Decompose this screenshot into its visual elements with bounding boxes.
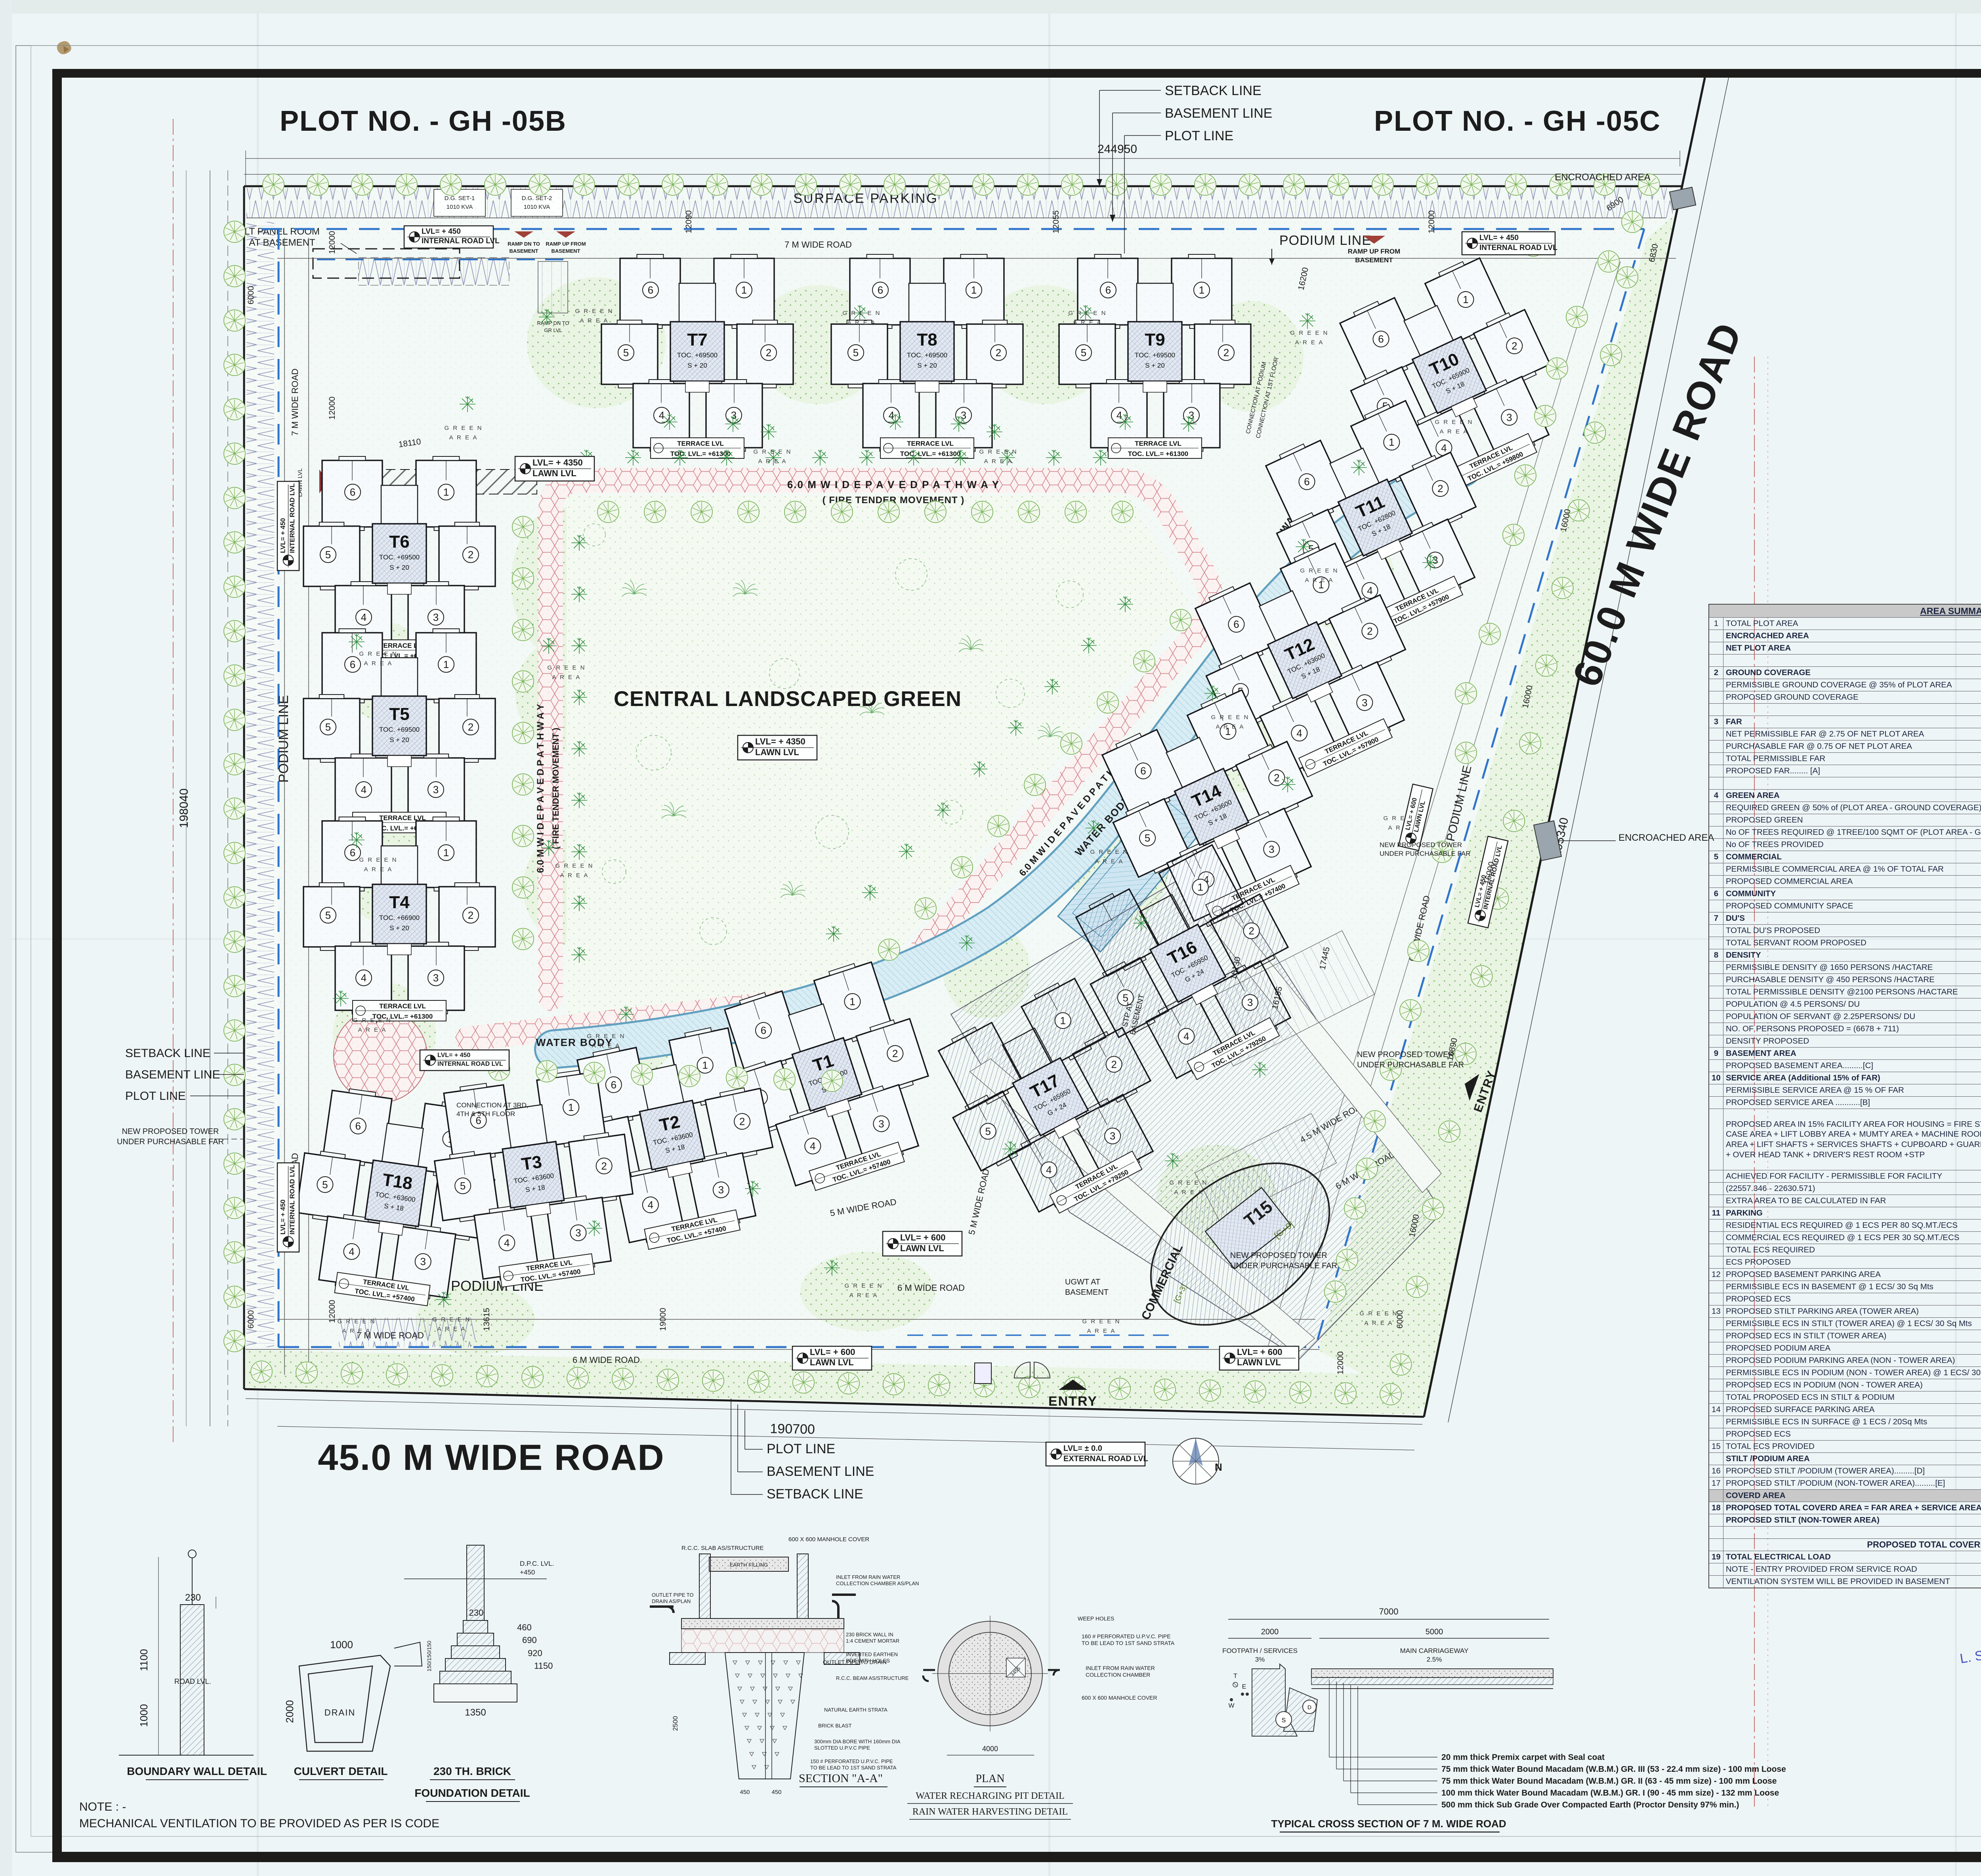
svg-text:LAWN LVL: LAWN LVL xyxy=(755,747,799,757)
svg-text:230 TH. BRICK: 230 TH. BRICK xyxy=(433,1765,511,1777)
svg-text:A R E A: A R E A xyxy=(580,317,609,324)
svg-text:150 # PERFORATED U.P.V.C. PIPE: 150 # PERFORATED U.P.V.C. PIPE xyxy=(810,1758,893,1764)
svg-text:EXTERNAL ROAD LVL: EXTERNAL ROAD LVL xyxy=(1063,1454,1148,1463)
svg-text:LVL= + 450: LVL= + 450 xyxy=(279,1199,287,1235)
svg-text:160 # PERFORATED U.P.V.C. PIPE: 160 # PERFORATED U.P.V.C. PIPE xyxy=(1082,1633,1171,1639)
svg-text:A R E A: A R E A xyxy=(984,458,1013,465)
svg-text:230: 230 xyxy=(185,1592,201,1603)
svg-text:NATURAL EARTH STRATA: NATURAL EARTH STRATA xyxy=(824,1707,887,1713)
svg-text:G R E E N: G R E E N xyxy=(1082,1318,1120,1325)
svg-text:TO BE LEAD TO 1ST SAND STRATA: TO BE LEAD TO 1ST SAND STRATA xyxy=(810,1765,897,1771)
svg-text:FOOTPATH / SERVICES: FOOTPATH / SERVICES xyxy=(1222,1647,1298,1655)
svg-text:UNDER PURCHASABLE FAR: UNDER PURCHASABLE FAR xyxy=(1380,850,1471,857)
svg-text:A R E A: A R E A xyxy=(364,866,393,873)
svg-text:600 X 600 MANHOLE COVER: 600 X 600 MANHOLE COVER xyxy=(1082,1695,1157,1701)
svg-text:190700: 190700 xyxy=(770,1421,815,1437)
svg-text:A R E A: A R E A xyxy=(758,458,787,465)
svg-text:LVL= ± 0.0: LVL= ± 0.0 xyxy=(1063,1444,1102,1453)
svg-text:4000: 4000 xyxy=(982,1745,998,1753)
svg-text:1:4 CEMENT MORTAR: 1:4 CEMENT MORTAR xyxy=(846,1638,899,1644)
svg-text:COLLECTION CHAMBER AS/PLAN: COLLECTION CHAMBER AS/PLAN xyxy=(836,1580,919,1586)
svg-text:BASEMENT: BASEMENT xyxy=(1065,1288,1109,1297)
svg-text:G R E E N: G R E E N xyxy=(1169,1179,1208,1186)
svg-text:S: S xyxy=(1282,1717,1286,1724)
svg-text:LAWN LVL: LAWN LVL xyxy=(900,1243,944,1253)
svg-text:INTERNAL ROAD LVL: INTERNAL ROAD LVL xyxy=(437,1061,503,1067)
svg-text:450: 450 xyxy=(771,1789,781,1796)
svg-text:12000: 12000 xyxy=(1427,210,1436,233)
svg-text:G R E E N: G R E E N xyxy=(1090,849,1128,855)
svg-text:12000: 12000 xyxy=(328,1300,337,1323)
svg-text:G R E E N: G R E E N xyxy=(444,425,483,431)
svg-text:PLOT NO. - GH -05C: PLOT NO. - GH -05C xyxy=(1374,105,1661,137)
svg-text:G R E E N: G R E E N xyxy=(753,448,792,455)
svg-text:WATER RECHARGING PIT DETAIL: WATER RECHARGING PIT DETAIL xyxy=(916,1791,1065,1801)
svg-text:G R E E N: G R E E N xyxy=(1359,1310,1398,1317)
svg-text:6000: 6000 xyxy=(246,1310,256,1329)
svg-text:A R E A: A R E A xyxy=(1216,723,1245,730)
svg-text:UNDER PURCHASABLE FAR: UNDER PURCHASABLE FAR xyxy=(1357,1061,1464,1069)
svg-text:A R E A: A R E A xyxy=(552,674,581,681)
svg-text:SETBACK LINE: SETBACK LINE xyxy=(125,1047,210,1060)
svg-text:CONNECTION AT 3RD,: CONNECTION AT 3RD, xyxy=(456,1101,529,1109)
svg-text:LVL= + 450: LVL= + 450 xyxy=(422,227,461,236)
svg-text:NEW PROPOSED TOWER: NEW PROPOSED TOWER xyxy=(122,1127,219,1136)
svg-text:LVL= + 450: LVL= + 450 xyxy=(1479,234,1519,242)
svg-text:G R E E N: G R E E N xyxy=(555,863,594,869)
svg-text:3%: 3% xyxy=(1255,1656,1265,1663)
svg-text:LVL= + 600: LVL= + 600 xyxy=(810,1347,855,1357)
svg-text:LVL= + 4350: LVL= + 4350 xyxy=(532,458,583,468)
svg-text:MECHANICAL VENTILATION TO BE P: MECHANICAL VENTILATION TO BE PROVIDED AS… xyxy=(79,1817,439,1830)
svg-text:A R E A: A R E A xyxy=(849,1292,878,1299)
svg-text:LAWN LVL: LAWN LVL xyxy=(810,1357,854,1367)
svg-text:WEEP HOLES: WEEP HOLES xyxy=(1078,1615,1114,1622)
svg-text:INLET FROM RAIN WATER: INLET FROM RAIN WATER xyxy=(836,1574,900,1580)
svg-text:G R E E N: G R E E N xyxy=(359,651,397,657)
svg-text:SECTION "A-A": SECTION "A-A" xyxy=(799,1772,883,1785)
svg-text:A R E A: A R E A xyxy=(1305,577,1334,584)
svg-text:DRAIN AS/PLAN: DRAIN AS/PLAN xyxy=(652,1598,691,1604)
svg-text:LVL= + 450: LVL= + 450 xyxy=(279,518,287,553)
svg-text:G R E E N: G R E E N xyxy=(979,448,1017,455)
svg-text:2000: 2000 xyxy=(1261,1628,1279,1636)
svg-text:13615: 13615 xyxy=(482,1308,491,1331)
svg-text:G R E E N: G R E E N xyxy=(1435,419,1473,426)
svg-text:LAWN LVL: LAWN LVL xyxy=(1237,1357,1281,1367)
svg-text:75 mm thick Water Bound Macada: 75 mm thick Water Bound Macadam (W.B.M.)… xyxy=(1441,1777,1777,1786)
svg-text:920: 920 xyxy=(528,1648,542,1658)
svg-text:BASEMENT LINE: BASEMENT LINE xyxy=(767,1464,874,1479)
svg-text:A R E A: A R E A xyxy=(342,1328,371,1334)
svg-text:7000: 7000 xyxy=(1379,1607,1399,1616)
svg-text:DRAIN: DRAIN xyxy=(324,1708,355,1718)
svg-text:LVL= + 450: LVL= + 450 xyxy=(437,1052,470,1059)
svg-text:LVL= + 4350: LVL= + 4350 xyxy=(755,737,805,746)
svg-text:A R E A: A R E A xyxy=(1073,319,1102,326)
svg-text:12090: 12090 xyxy=(684,210,693,233)
svg-text:19000: 19000 xyxy=(658,1308,668,1331)
svg-text:A R E A: A R E A xyxy=(358,1027,387,1033)
svg-text:UGWT AT: UGWT AT xyxy=(1065,1278,1100,1286)
svg-text:230: 230 xyxy=(469,1608,484,1618)
svg-text:T: T xyxy=(1233,1673,1237,1679)
svg-text:NEW PROPOSED TOWER: NEW PROPOSED TOWER xyxy=(1357,1050,1454,1059)
svg-text:+450: +450 xyxy=(520,1569,535,1576)
svg-text:1000: 1000 xyxy=(330,1639,353,1651)
svg-text:A R E A: A R E A xyxy=(560,872,589,879)
svg-text:D: D xyxy=(1307,1704,1311,1710)
svg-text:A R E A: A R E A xyxy=(592,1042,621,1049)
svg-text:BOUNDARY WALL DETAIL: BOUNDARY WALL DETAIL xyxy=(127,1765,267,1777)
svg-text:OUTLET PIPE TO DRAIN: OUTLET PIPE TO DRAIN xyxy=(823,1659,887,1665)
svg-text:A R E A: A R E A xyxy=(1440,428,1469,435)
svg-text:RAIN WATER HARVESTING DETAI: RAIN WATER HARVESTING DETAIL xyxy=(912,1807,1068,1817)
svg-text:PLAN: PLAN xyxy=(975,1773,1004,1785)
svg-text:ENTRY: ENTRY xyxy=(1048,1394,1097,1409)
svg-text:UNDER PURCHASABLE FAR: UNDER PURCHASABLE FAR xyxy=(1230,1261,1337,1270)
svg-text:D.P.C. LVL.: D.P.C. LVL. xyxy=(520,1560,554,1567)
svg-text:1000: 1000 xyxy=(138,1704,150,1727)
svg-text:A R E A: A R E A xyxy=(847,319,876,326)
svg-text:G R E E N: G R E E N xyxy=(547,664,586,671)
svg-text:INTERNAL ROAD LVL: INTERNAL ROAD LVL xyxy=(422,237,500,245)
svg-text:SLOTTED U.P.V.C PIPE: SLOTTED U.P.V.C PIPE xyxy=(814,1745,870,1751)
svg-text:G R E E N: G R E E N xyxy=(337,1318,376,1325)
svg-text:75 mm thick Water Bound Macada: 75 mm thick Water Bound Macadam (W.B.M.)… xyxy=(1441,1765,1786,1774)
svg-text:FOUNDATION DETAIL: FOUNDATION DETAIL xyxy=(414,1787,530,1799)
svg-text:A R E A: A R E A xyxy=(1095,858,1124,865)
svg-text:A R E A: A R E A xyxy=(449,434,478,441)
svg-text:NEW PROPOSED TOWER: NEW PROPOSED TOWER xyxy=(1230,1251,1327,1260)
svg-text:1350: 1350 xyxy=(465,1707,486,1718)
svg-text:R.C.C. SLAB AS/STRUCTURE: R.C.C. SLAB AS/STRUCTURE xyxy=(681,1545,764,1552)
svg-text:TO BE LEAD TO 1ST SAND STRATA: TO BE LEAD TO 1ST SAND STRATA xyxy=(1082,1640,1175,1646)
svg-text:12055: 12055 xyxy=(1052,210,1061,233)
svg-text:PLOT LINE: PLOT LINE xyxy=(1165,128,1233,143)
svg-text:600 X 600 MANHOLE COVER: 600 X 600 MANHOLE COVER xyxy=(788,1536,869,1543)
svg-text:R.C.C. BEAM AS/STRUCTURE: R.C.C. BEAM AS/STRUCTURE xyxy=(836,1675,909,1681)
svg-text:OUTLET PIPE TO: OUTLET PIPE TO xyxy=(652,1592,693,1598)
svg-text:A R E A: A R E A xyxy=(1365,1320,1393,1326)
svg-text:COLLECTION CHAMBER: COLLECTION CHAMBER xyxy=(1086,1672,1150,1678)
svg-text:A R E A: A R E A xyxy=(1174,1189,1203,1196)
svg-text:PLOT LINE: PLOT LINE xyxy=(125,1090,186,1103)
svg-text:100 mm thick Water Bound Macad: 100 mm thick Water Bound Macadam (W.B.M.… xyxy=(1441,1788,1779,1798)
svg-text:INTERNAL ROAD LVL: INTERNAL ROAD LVL xyxy=(288,483,296,553)
svg-text:PLOT LINE: PLOT LINE xyxy=(767,1441,835,1456)
svg-text:6000: 6000 xyxy=(1395,1310,1405,1329)
svg-text:A R E A: A R E A xyxy=(437,1326,466,1332)
svg-text:G R E E N: G R E E N xyxy=(842,310,881,317)
svg-text:A R E A: A R E A xyxy=(1087,1328,1116,1334)
svg-text:230 BRICK WALL IN: 230 BRICK WALL IN xyxy=(846,1632,893,1637)
svg-text:SETBACK LINE: SETBACK LINE xyxy=(767,1487,863,1502)
svg-text:CULVERT DETAIL: CULVERT DETAIL xyxy=(294,1765,388,1777)
svg-text:ENCROACHED AREA: ENCROACHED AREA xyxy=(1555,172,1650,183)
svg-text:BASEMENT LINE: BASEMENT LINE xyxy=(1165,106,1272,121)
svg-text:INLET FROM RAIN WATER: INLET FROM RAIN WATER xyxy=(1086,1665,1155,1671)
svg-text:690: 690 xyxy=(522,1635,537,1645)
svg-text:MAIN CARRIAGEWAY: MAIN CARRIAGEWAY xyxy=(1400,1647,1469,1655)
svg-text:INVERTED EARTHEN: INVERTED EARTHEN xyxy=(846,1651,898,1657)
svg-text:N: N xyxy=(1215,1461,1222,1473)
svg-text:EARTH FILLING: EARTH FILLING xyxy=(730,1562,768,1568)
svg-text:G R E E N: G R E E N xyxy=(353,1017,391,1024)
svg-text:2.5%: 2.5% xyxy=(1427,1656,1442,1663)
svg-text:20 mm thick Premix carpet with: 20 mm thick Premix carpet with Seal coat xyxy=(1441,1753,1605,1762)
svg-text:G R E E N: G R E E N xyxy=(1211,714,1249,721)
svg-text:LVL= + 600: LVL= + 600 xyxy=(1237,1347,1282,1357)
svg-text:G R E E N: G R E E N xyxy=(844,1282,883,1289)
svg-text:4TH & 5TH FLOOR: 4TH & 5TH FLOOR xyxy=(456,1110,515,1118)
svg-text:G R E E N: G R E E N xyxy=(359,857,397,863)
svg-text:450: 450 xyxy=(740,1789,750,1796)
svg-text:A R E A: A R E A xyxy=(1295,339,1324,346)
svg-text:5000: 5000 xyxy=(1426,1628,1443,1636)
svg-text:G R E E N: G R E E N xyxy=(575,308,613,315)
svg-text:150/150/150: 150/150/150 xyxy=(426,1641,432,1672)
svg-text:INTERNAL ROAD LVL: INTERNAL ROAD LVL xyxy=(1479,244,1557,252)
svg-text:12000: 12000 xyxy=(328,397,337,420)
svg-text:G R E E N: G R E E N xyxy=(1300,567,1338,574)
svg-text:BASEMENT LINE: BASEMENT LINE xyxy=(125,1068,220,1081)
svg-text:1150: 1150 xyxy=(534,1661,553,1671)
svg-text:ROAD LVL.: ROAD LVL. xyxy=(174,1678,211,1685)
svg-text:TYPICAL CROSS SECTION OF 7 M.: TYPICAL CROSS SECTION OF 7 M. WIDE ROAD xyxy=(1271,1818,1506,1830)
svg-text:LVL= + 600: LVL= + 600 xyxy=(900,1233,946,1242)
svg-text:198040: 198040 xyxy=(177,788,191,828)
svg-text:NOTE : -: NOTE : - xyxy=(79,1800,126,1813)
svg-text:CENTRAL LANDSCAPED GREEN: CENTRAL LANDSCAPED GREEN xyxy=(614,687,962,711)
svg-text:460: 460 xyxy=(517,1622,532,1632)
svg-text:INTERNAL ROAD LVL: INTERNAL ROAD LVL xyxy=(288,1165,296,1235)
svg-text:12000: 12000 xyxy=(1336,1351,1345,1374)
svg-text:W: W xyxy=(1228,1702,1235,1709)
svg-text:G R E E N: G R E E N xyxy=(432,1316,471,1323)
svg-text:NEW PROPOSED TOWER: NEW PROPOSED TOWER xyxy=(1380,841,1462,849)
svg-text:A R E A: A R E A xyxy=(364,660,393,667)
svg-text:SETBACK LINE: SETBACK LINE xyxy=(1165,83,1262,98)
svg-text:G R E E N: G R E E N xyxy=(587,1033,625,1040)
svg-text:G R E E N: G R E E N xyxy=(1290,330,1328,336)
svg-text:UNDER PURCHASABLE FAR: UNDER PURCHASABLE FAR xyxy=(117,1137,224,1146)
svg-text:6000: 6000 xyxy=(246,286,256,305)
svg-text:2500: 2500 xyxy=(672,1716,679,1731)
svg-text:G R E E N: G R E E N xyxy=(1068,310,1107,317)
svg-text:500 mm thick Sub Grade Over Co: 500 mm thick Sub Grade Over Compacted Ea… xyxy=(1441,1800,1739,1809)
svg-text:12000: 12000 xyxy=(328,231,337,254)
svg-text:45.0 M WIDE ROAD: 45.0 M WIDE ROAD xyxy=(318,1437,664,1478)
svg-text:E: E xyxy=(1242,1683,1246,1690)
svg-text:LAWN LVL: LAWN LVL xyxy=(532,468,576,478)
svg-text:PLOT NO. - GH -05B: PLOT NO. - GH -05B xyxy=(280,105,567,137)
svg-text:1100: 1100 xyxy=(138,1649,150,1671)
svg-text:244950: 244950 xyxy=(1097,143,1137,156)
svg-text:2000: 2000 xyxy=(284,1700,296,1723)
svg-text:ENCROACHED AREA: ENCROACHED AREA xyxy=(1618,832,1714,843)
svg-text:300mm DIA BORE WITH 160mm DIA: 300mm DIA BORE WITH 160mm DIA xyxy=(814,1739,901,1744)
svg-text:BRICK BLAST: BRICK BLAST xyxy=(818,1723,852,1729)
